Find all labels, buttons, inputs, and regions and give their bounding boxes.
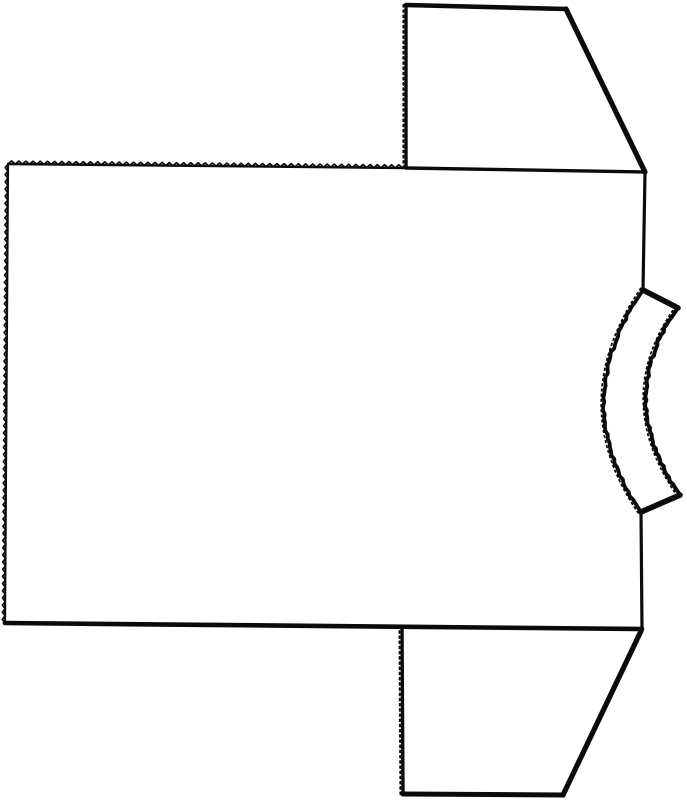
body-bottom-edge (5, 623, 642, 629)
neckline-inner-arc (603, 290, 643, 512)
piece-bottom-sleeve (399, 627, 641, 795)
pattern-svg (0, 0, 687, 800)
body-right-lower-edge (641, 512, 642, 629)
neckband-top-cut-edge (643, 290, 678, 308)
garment-pattern-figure (0, 0, 687, 800)
neckband-outer-arc (645, 308, 680, 495)
bottom-sleeve-end-edge (403, 794, 563, 795)
bottom-sleeve-inner-edge (402, 627, 403, 794)
bottom-sleeve-slant-edge (563, 631, 641, 795)
top-sleeve-end-edge (406, 5, 566, 9)
body-top-right-edge (406, 168, 645, 172)
piece-neckband (641, 290, 680, 512)
piece-top-sleeve (403, 5, 645, 172)
body-right-shoulder-edge (643, 172, 645, 290)
top-sleeve-slant-edge (566, 9, 645, 172)
bottom-sleeve-inner-edge-fray (399, 627, 400, 794)
neckband-bottom-cut-edge (641, 495, 680, 512)
piece-body-panel (2, 161, 645, 629)
